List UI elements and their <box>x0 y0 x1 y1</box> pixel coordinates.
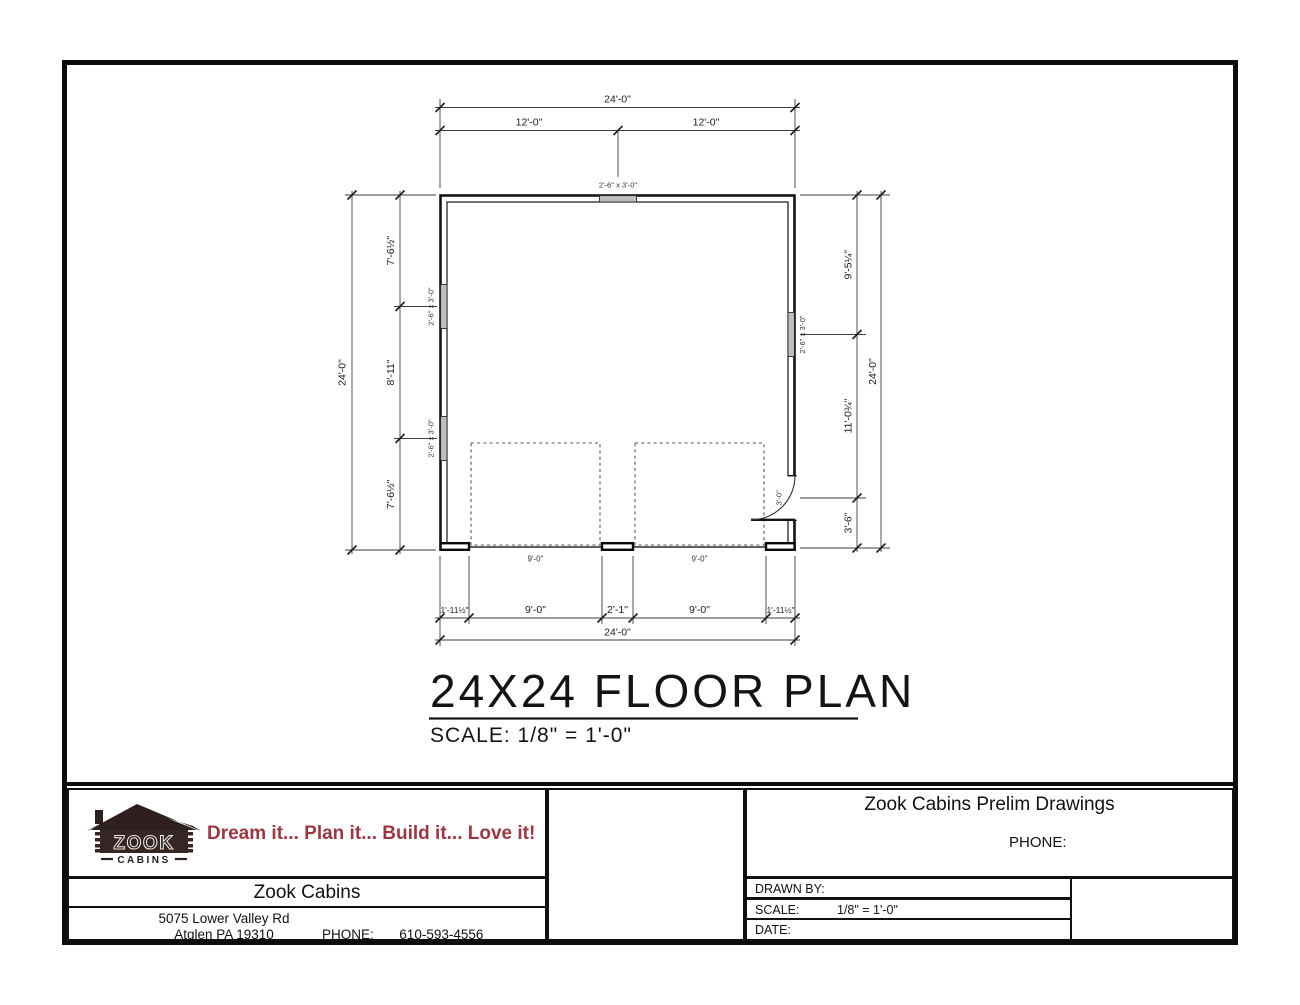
dim-top-right-half: 12'-0" <box>693 117 720 129</box>
company-phone-line: PHONE: 610-593-4556 <box>322 927 483 942</box>
company-phone-label: PHONE: <box>322 927 374 942</box>
project-title: Zook Cabins Prelim Drawings <box>747 790 1232 816</box>
company-phone-number: 610-593-4556 <box>399 927 483 942</box>
garage-openings <box>441 541 795 553</box>
title-block-empty-box <box>547 788 745 941</box>
label-window-top: 2'-6" x 3'-0" <box>599 181 638 190</box>
dim-bottom-pier-right: 1'-11½" <box>766 605 794 615</box>
dim-left-overall: 24'-0" <box>337 359 349 386</box>
dim-bottom-overall: 24'-0" <box>604 627 631 639</box>
exterior-walls <box>441 196 795 550</box>
window-top <box>600 196 637 202</box>
title-block-divider <box>63 782 1238 786</box>
dim-bottom-opening-left: 9'-0" <box>525 604 546 616</box>
date-row: DATE: <box>745 918 1072 941</box>
address-line-2: Atglen PA 19310 <box>109 927 339 943</box>
revision-box <box>1070 877 1235 941</box>
label-window-left-lower: 2'-6" x 3'-0" <box>427 419 436 458</box>
drawn-by-label: DRAWN BY: <box>747 879 1070 896</box>
zook-cabins-logo: ZOOK CABINS <box>85 793 205 873</box>
label-garage-left: 9'-0" <box>528 555 544 564</box>
scale-row: SCALE: 1/8" = 1'-0" <box>745 898 1072 920</box>
label-garage-right: 9'-0" <box>692 555 708 564</box>
dim-right-overall: 24'-0" <box>867 358 879 385</box>
dim-top-left-half: 12'-0" <box>516 117 543 129</box>
project-phone-label: PHONE: <box>1009 834 1067 851</box>
address-line-1: 5075 Lower Valley Rd <box>109 911 339 927</box>
dim-right-bottom: 3'-6" <box>843 512 855 533</box>
dim-right-top: 9'-5¼" <box>843 250 855 280</box>
logo-box: ZOOK CABINS Dream it... Plan it... Build… <box>67 788 547 878</box>
plan-scale-note: SCALE: 1/8" = 1'-0" <box>430 724 632 747</box>
logo-sub: CABINS <box>117 855 170 866</box>
dim-top-overall: 24'-0" <box>604 94 631 106</box>
label-window-left-upper: 2'-6" x 3'-0" <box>427 287 436 326</box>
window-left-lower <box>441 417 447 461</box>
window-right <box>788 313 794 357</box>
dim-bottom-center-pier: 2'-1" <box>607 604 628 616</box>
project-box: Zook Cabins Prelim Drawings PHONE: <box>745 788 1234 878</box>
label-window-right: 2'-6" x 3'-0" <box>798 315 807 354</box>
tagline: Dream it... Plan it... Build it... Love … <box>207 823 535 845</box>
window-left-upper <box>441 285 447 329</box>
company-box: Zook Cabins 5075 Lower Valley Rd Atglen … <box>67 877 547 941</box>
dim-left-bottom: 7'-6½" <box>385 479 397 509</box>
dimensions-top <box>435 99 800 188</box>
label-door: 3'-0" <box>775 490 784 505</box>
date-label: DATE: <box>747 920 1070 937</box>
logo-name: ZOOK <box>114 833 175 854</box>
scale-label: SCALE: <box>747 900 1070 917</box>
dim-bottom-opening-right: 9'-0" <box>689 604 710 616</box>
plan-title: 24X24 FLOOR PLAN <box>430 665 915 717</box>
scale-value: 1/8" = 1'-0" <box>837 903 898 917</box>
dim-left-mid: 8'-11" <box>385 359 397 385</box>
dim-right-mid: 11'-0¾" <box>843 398 855 433</box>
dim-left-top: 7'-6½" <box>385 236 397 266</box>
floor-plan-drawing: 24'-0" 12'-0" 12'-0" 2'-6" x 3'-0" 1'-11… <box>0 0 1300 760</box>
company-name: Zook Cabins <box>69 879 545 908</box>
dim-bottom-pier-left: 1'-11½" <box>440 605 468 615</box>
drawn-by-row: DRAWN BY: <box>745 877 1072 899</box>
company-address: 5075 Lower Valley Rd Atglen PA 19310 <box>109 911 339 943</box>
